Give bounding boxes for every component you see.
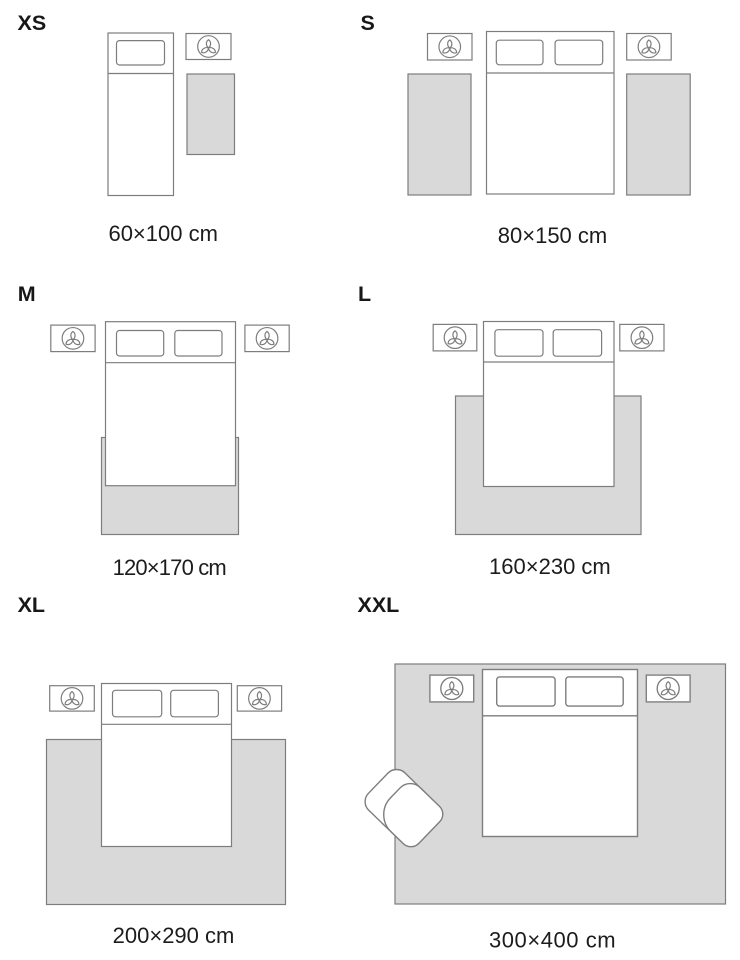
svg-text:300×400 cm: 300×400 cm [489,928,616,953]
svg-text:120×170 cm: 120×170 cm [113,555,226,580]
svg-text:M: M [18,282,36,306]
svg-text:80×150 cm: 80×150 cm [498,223,607,248]
svg-text:XL: XL [18,593,45,617]
svg-text:160×230 cm: 160×230 cm [489,554,611,579]
svg-text:60×100 cm: 60×100 cm [108,221,217,246]
svg-text:XXL: XXL [358,593,400,617]
svg-text:L: L [358,282,371,306]
svg-text:XS: XS [18,11,47,35]
svg-text:200×290 cm: 200×290 cm [113,923,235,948]
svg-text:S: S [361,11,375,35]
